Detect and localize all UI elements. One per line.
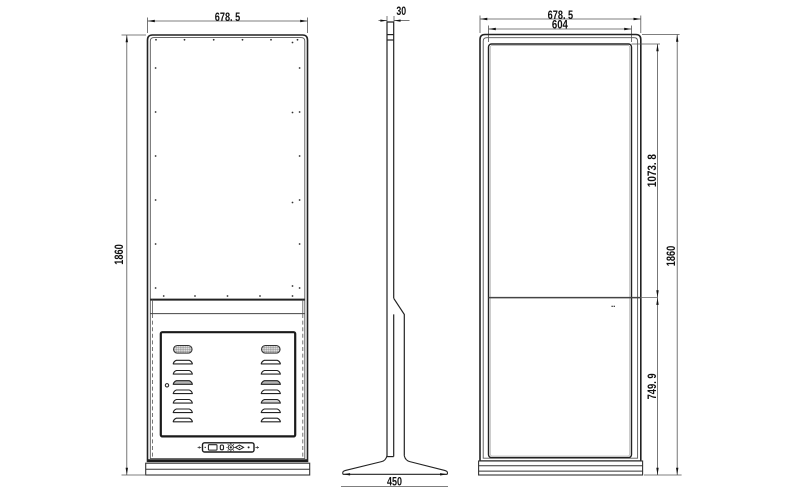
svg-text:30: 30 (396, 4, 406, 18)
svg-text:604: 604 (552, 18, 568, 32)
svg-text:450: 450 (387, 475, 402, 489)
svg-text:1860: 1860 (664, 246, 678, 267)
svg-text:1073. 8: 1073. 8 (645, 154, 659, 187)
svg-text:678. 5: 678. 5 (215, 10, 241, 24)
svg-text:749. 9: 749. 9 (645, 373, 659, 399)
svg-text:1860: 1860 (112, 244, 126, 265)
